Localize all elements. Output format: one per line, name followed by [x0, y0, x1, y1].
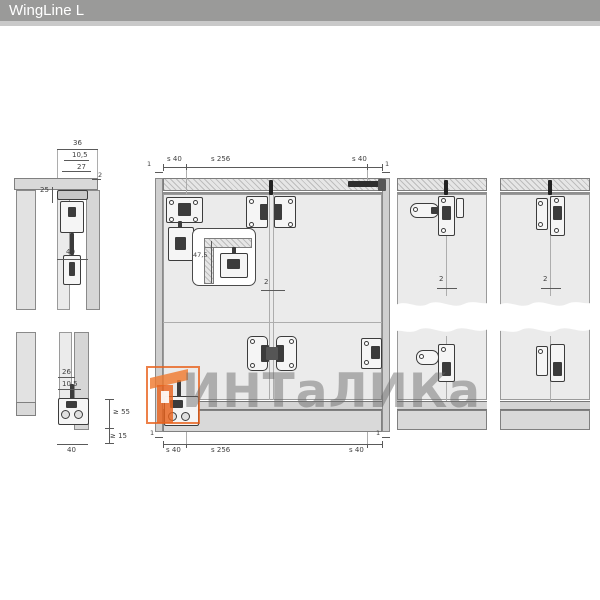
watermark: ИНТаЛИКа [0, 0, 600, 600]
screenshot-root: WingLine L 36 10,5 27 2 [0, 0, 600, 600]
watermark-logo-slot [161, 391, 169, 403]
watermark-text: ИНТаЛИКа [182, 366, 481, 418]
